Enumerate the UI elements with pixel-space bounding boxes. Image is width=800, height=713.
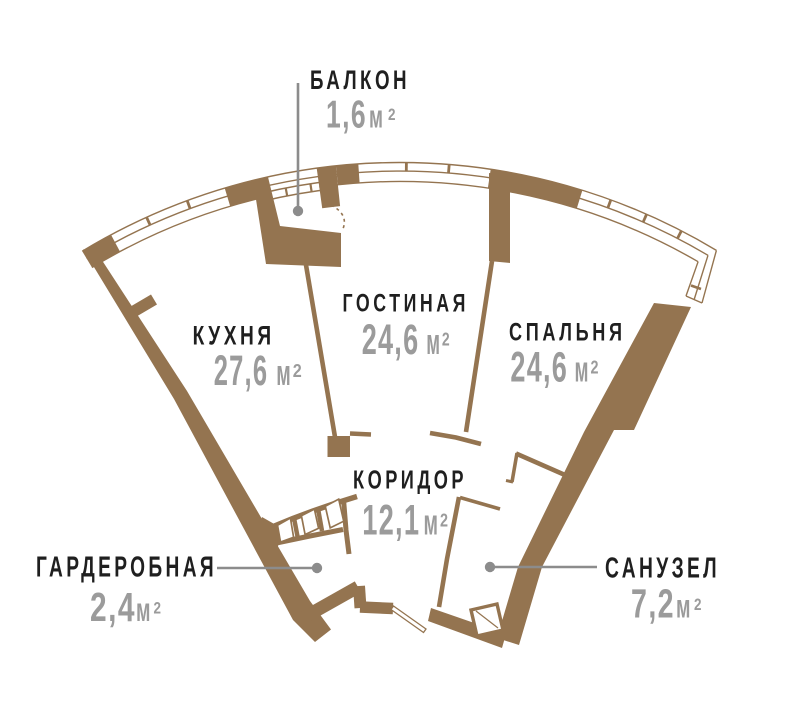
svg-text:2,4: 2,4: [90, 584, 136, 630]
svg-text:2: 2: [442, 330, 450, 350]
svg-text:БАЛКОН: БАЛКОН: [310, 65, 410, 95]
svg-text:СПАЛЬНЯ: СПАЛЬНЯ: [509, 319, 626, 347]
svg-text:7,2: 7,2: [631, 581, 675, 627]
svg-text:м: м: [575, 350, 589, 390]
svg-text:ГОСТИНАЯ: ГОСТИНАЯ: [343, 290, 470, 318]
svg-text:КУХНЯ: КУХНЯ: [193, 320, 275, 350]
svg-text:2: 2: [440, 510, 448, 530]
svg-text:КОРИДОР: КОРИДОР: [353, 464, 467, 494]
svg-text:2: 2: [388, 106, 396, 124]
svg-text:м: м: [369, 99, 383, 135]
svg-text:12,1: 12,1: [362, 497, 420, 545]
svg-text:27,6: 27,6: [214, 347, 268, 395]
svg-text:24,6: 24,6: [510, 344, 568, 392]
svg-text:2: 2: [694, 595, 702, 614]
svg-text:м: м: [426, 322, 440, 362]
svg-text:м: м: [676, 589, 691, 626]
svg-text:ГАРДЕРОБНАЯ: ГАРДЕРОБНАЯ: [36, 551, 217, 583]
svg-text:24,6: 24,6: [362, 316, 420, 364]
svg-text:м: м: [424, 503, 439, 543]
svg-text:м: м: [136, 592, 151, 629]
svg-text:2: 2: [154, 598, 162, 617]
svg-text:1,6: 1,6: [326, 94, 367, 137]
svg-text:м: м: [276, 353, 291, 393]
svg-text:2: 2: [591, 357, 599, 377]
svg-text:2: 2: [293, 361, 302, 381]
